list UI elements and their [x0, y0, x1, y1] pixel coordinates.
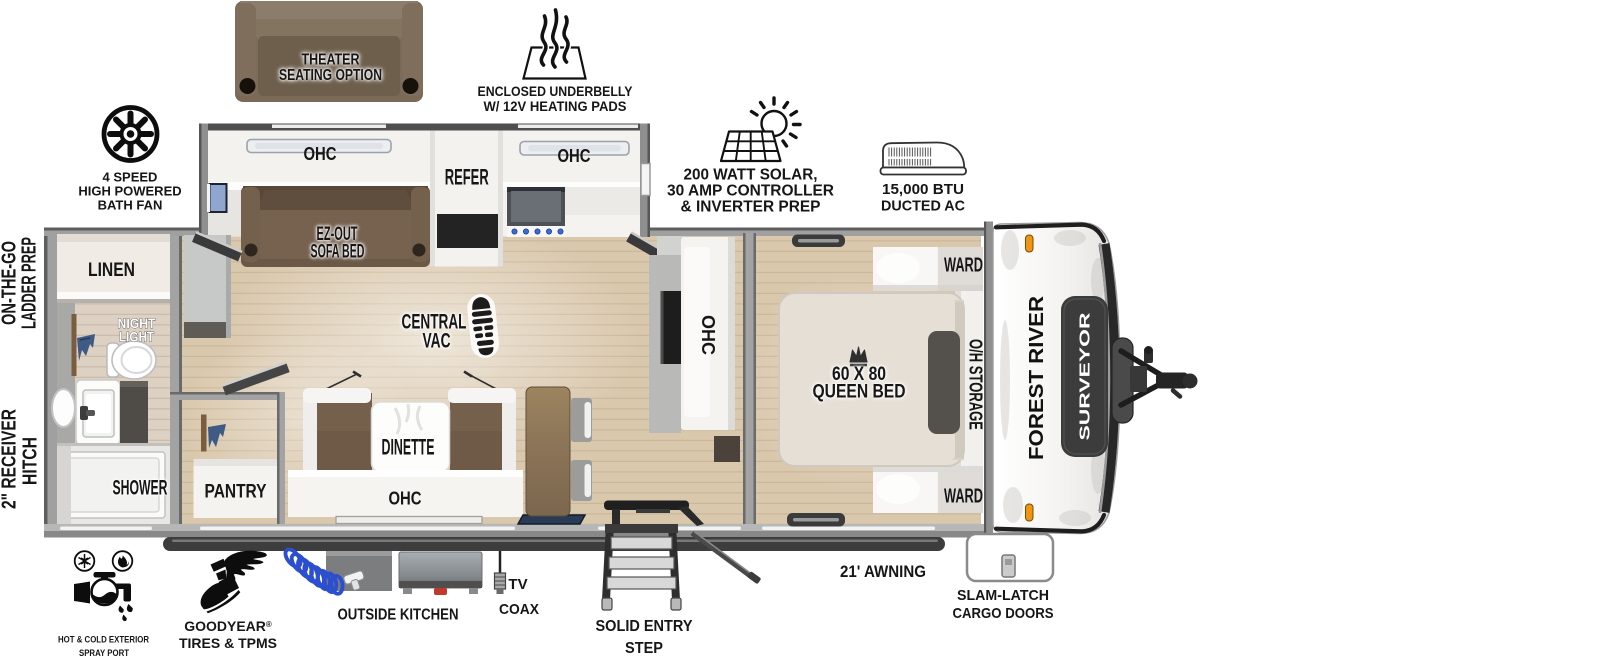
svg-text:WARD: WARD [944, 486, 983, 508]
svg-text:DUCTED AC: DUCTED AC [881, 198, 965, 215]
svg-text:200 WATT SOLAR,: 200 WATT SOLAR, [684, 167, 818, 184]
svg-text:REFER: REFER [445, 165, 489, 190]
svg-text:FOREST RIVER: FOREST RIVER [1026, 295, 1048, 460]
svg-text:THEATER: THEATER [302, 52, 360, 69]
svg-text:LINEN: LINEN [88, 259, 135, 281]
svg-text:OHC: OHC [304, 144, 337, 164]
svg-text:OHC: OHC [389, 489, 422, 509]
svg-text:SEATING OPTION: SEATING OPTION [279, 67, 382, 84]
svg-text:COAX: COAX [499, 601, 539, 618]
svg-text:BATH FAN: BATH FAN [98, 198, 163, 213]
svg-text:LADDER PREP: LADDER PREP [19, 237, 41, 329]
svg-text:4 SPEED: 4 SPEED [103, 170, 158, 185]
svg-text:OUTSIDE KITCHEN: OUTSIDE KITCHEN [338, 607, 459, 624]
svg-text:LIGHT: LIGHT [119, 329, 154, 345]
svg-text:HIGH POWERED: HIGH POWERED [78, 184, 181, 199]
svg-text:WARD: WARD [944, 255, 983, 277]
svg-text:GOODYEAR®: GOODYEAR® [184, 618, 272, 634]
svg-text:SHOWER: SHOWER [113, 476, 168, 499]
svg-text:DINETTE: DINETTE [382, 435, 435, 460]
svg-text:21' AWNING: 21' AWNING [840, 562, 926, 581]
svg-text:30 AMP CONTROLLER: 30 AMP CONTROLLER [667, 183, 834, 200]
svg-text:SLAM-LATCH: SLAM-LATCH [957, 587, 1049, 604]
svg-text:PANTRY: PANTRY [205, 482, 267, 503]
svg-text:SOFA BED: SOFA BED [311, 240, 365, 262]
svg-text:QUEEN BED: QUEEN BED [813, 382, 906, 403]
svg-text:HOT & COLD EXTERIOR: HOT & COLD EXTERIOR [58, 635, 149, 646]
svg-text:SURVEYOR: SURVEYOR [1077, 312, 1094, 440]
svg-text:TIRES & TPMS: TIRES & TPMS [179, 635, 277, 651]
svg-text:VAC: VAC [423, 330, 451, 353]
svg-text:SPRAY PORT: SPRAY PORT [79, 648, 129, 659]
svg-text:OHC: OHC [698, 315, 718, 355]
svg-text:ENCLOSED UNDERBELLY: ENCLOSED UNDERBELLY [478, 83, 634, 99]
svg-text:& INVERTER PREP: & INVERTER PREP [681, 199, 821, 216]
svg-text:15,000 BTU: 15,000 BTU [882, 181, 964, 198]
svg-text:O/H STORAGE: O/H STORAGE [966, 339, 987, 430]
svg-text:OHC: OHC [558, 146, 591, 166]
svg-text:ON-THE-GO: ON-THE-GO [0, 241, 21, 325]
svg-text:TV: TV [508, 576, 527, 593]
svg-text:SOLID ENTRY: SOLID ENTRY [596, 618, 693, 635]
svg-text:W/ 12V HEATING PADS: W/ 12V HEATING PADS [484, 98, 627, 114]
svg-text:HITCH: HITCH [20, 437, 42, 485]
svg-text:2" RECEIVER: 2" RECEIVER [0, 409, 21, 509]
svg-text:STEP: STEP [625, 640, 663, 657]
svg-text:CARGO DOORS: CARGO DOORS [953, 605, 1054, 622]
